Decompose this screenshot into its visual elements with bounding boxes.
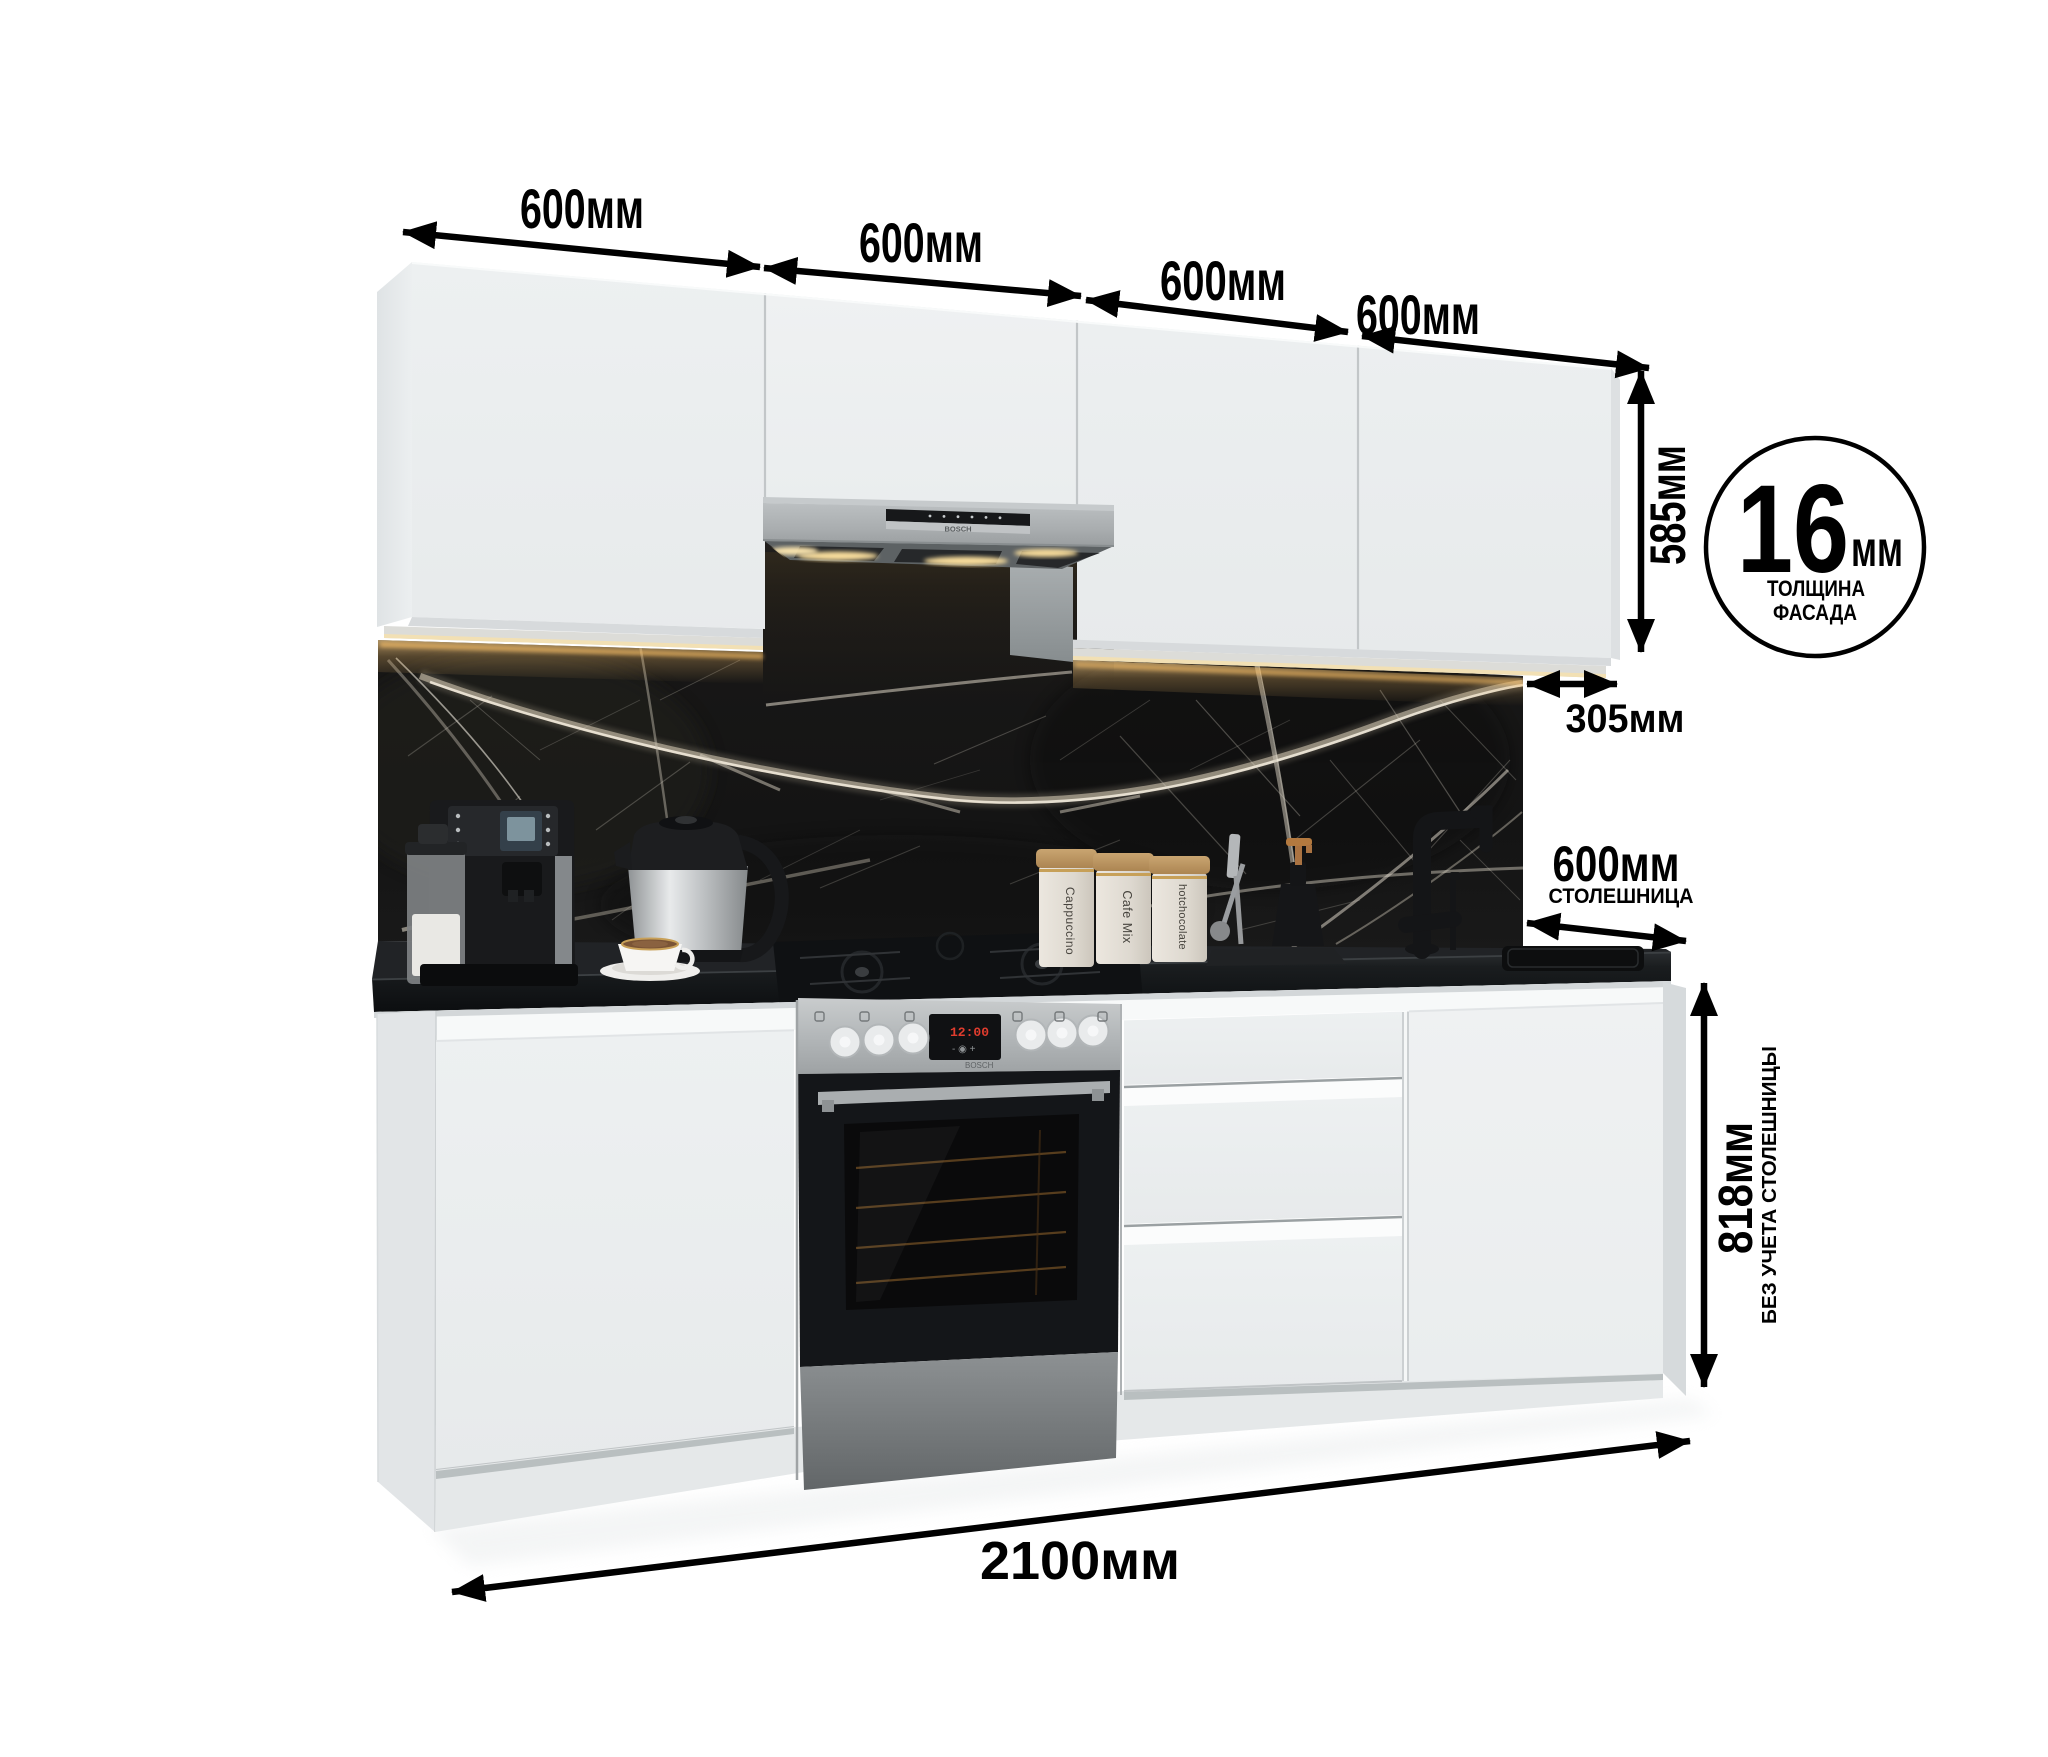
- svg-text:мм: мм: [1851, 521, 1903, 577]
- svg-text:600мм: 600мм: [520, 177, 644, 240]
- svg-text:600мм: 600мм: [1553, 836, 1680, 892]
- svg-text:ФАСАДА: ФАСАДА: [1773, 600, 1857, 625]
- svg-text:Cappuccino: Cappuccino: [1063, 887, 1077, 955]
- svg-text:BOSCH: BOSCH: [965, 1061, 994, 1070]
- svg-text:2100мм: 2100мм: [980, 1531, 1180, 1591]
- svg-text:hotchocolate: hotchocolate: [1176, 884, 1188, 950]
- svg-text:ТОЛЩИНА: ТОЛЩИНА: [1767, 576, 1865, 601]
- svg-text:- ◉ +: - ◉ +: [952, 1044, 976, 1055]
- svg-text:600мм: 600мм: [1160, 249, 1286, 312]
- svg-text:БЕЗ УЧЕТА СТОЛЕШНИЦЫ: БЕЗ УЧЕТА СТОЛЕШНИЦЫ: [1759, 1046, 1781, 1324]
- svg-text:585мм: 585мм: [1640, 445, 1696, 565]
- svg-text:Cafe Mix: Cafe Mix: [1120, 890, 1134, 944]
- svg-text:600мм: 600мм: [859, 211, 983, 274]
- svg-text:BOSCH: BOSCH: [944, 525, 971, 534]
- svg-text:818мм: 818мм: [1710, 1122, 1763, 1254]
- svg-text:600мм: 600мм: [1356, 283, 1480, 346]
- svg-text:СТОЛЕШНИЦА: СТОЛЕШНИЦА: [1549, 885, 1694, 908]
- svg-text:12:00: 12:00: [950, 1025, 989, 1040]
- svg-text:305мм: 305мм: [1566, 697, 1685, 741]
